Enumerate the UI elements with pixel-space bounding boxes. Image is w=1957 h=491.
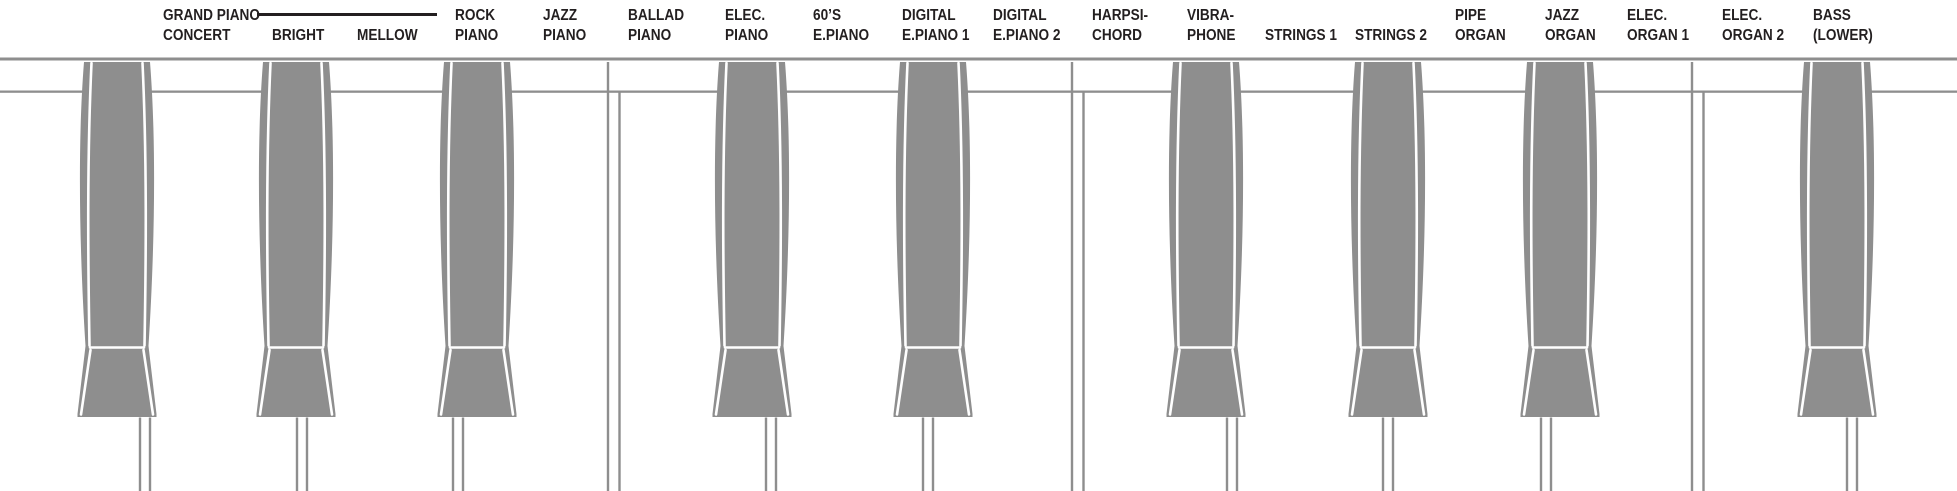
- voice-label-bass-lower: BASS(LOWER): [1813, 6, 1873, 46]
- voice-label-line: DIGITAL: [902, 6, 969, 26]
- voice-label-line: ORGAN: [1545, 26, 1596, 46]
- voice-label-line: PIPE: [1455, 6, 1506, 26]
- voice-label-digital-e-piano-1: DIGITALE.PIANO 1: [902, 6, 969, 46]
- voice-label-line: 60’S: [813, 6, 869, 26]
- voice-label-jazz-piano: JAZZPIANO: [543, 6, 586, 46]
- voice-label-vibra-phone: VIBRA-PHONE: [1187, 6, 1236, 46]
- voice-label-line: BASS: [1813, 6, 1873, 26]
- voice-label-line: JAZZ: [543, 6, 586, 26]
- voice-label-rock-piano: ROCKPIANO: [455, 6, 498, 46]
- voice-label-elec-organ-2: ELEC.ORGAN 2: [1722, 6, 1784, 46]
- voice-label-line: ORGAN 1: [1627, 26, 1689, 46]
- voice-label-harpsi-chord: HARPSI-CHORD: [1092, 6, 1148, 46]
- voice-label-60-s-e-piano: 60’SE.PIANO: [813, 6, 869, 46]
- voice-label-line: ORGAN 2: [1722, 26, 1784, 46]
- voice-label-digital-e-piano-2: DIGITALE.PIANO 2: [993, 6, 1060, 46]
- voice-label-line: JAZZ: [1545, 6, 1596, 26]
- voice-labels: GRAND PIANOCONCERTBRIGHTMELLOWROCKPIANOJ…: [0, 0, 1957, 491]
- voice-label-line: PHONE: [1187, 26, 1236, 46]
- voice-label-line: CHORD: [1092, 26, 1148, 46]
- voice-label-line: PIANO: [543, 26, 586, 46]
- voice-label-jazz-organ: JAZZORGAN: [1545, 6, 1596, 46]
- voice-label-line: PIANO: [455, 26, 498, 46]
- grand-piano-brace-line: [257, 13, 437, 16]
- voice-label-line: E.PIANO 2: [993, 26, 1060, 46]
- voice-key-diagram: GRAND PIANOCONCERTBRIGHTMELLOWROCKPIANOJ…: [0, 0, 1957, 491]
- voice-label-strings-1: STRINGS 1: [1265, 26, 1337, 46]
- voice-label-elec-organ-1: ELEC.ORGAN 1: [1627, 6, 1689, 46]
- voice-label-line: BRIGHT: [272, 26, 324, 46]
- voice-label-elec-piano: ELEC.PIANO: [725, 6, 768, 46]
- voice-label-line: CONCERT: [163, 26, 260, 46]
- voice-label-line: (LOWER): [1813, 26, 1873, 46]
- voice-label-line: HARPSI-: [1092, 6, 1148, 26]
- voice-label-line: E.PIANO 1: [902, 26, 969, 46]
- voice-label-line: ELEC.: [725, 6, 768, 26]
- voice-label-line: BALLAD: [628, 6, 684, 26]
- voice-label-ballad-piano: BALLADPIANO: [628, 6, 684, 46]
- voice-label-line: MELLOW: [357, 26, 418, 46]
- voice-label-line: ELEC.: [1722, 6, 1784, 26]
- voice-label-line: STRINGS 1: [1265, 26, 1337, 46]
- voice-label-line: E.PIANO: [813, 26, 869, 46]
- voice-label-bright: BRIGHT: [272, 26, 324, 46]
- voice-label-line: ROCK: [455, 6, 498, 26]
- voice-label-strings-2: STRINGS 2: [1355, 26, 1427, 46]
- voice-label-line: VIBRA-: [1187, 6, 1236, 26]
- voice-label-pipe-organ: PIPEORGAN: [1455, 6, 1506, 46]
- voice-label-mellow: MELLOW: [357, 26, 418, 46]
- voice-label-line: GRAND PIANO: [163, 6, 260, 26]
- voice-label-grand-piano-concert: GRAND PIANOCONCERT: [163, 6, 260, 46]
- voice-label-line: ELEC.: [1627, 6, 1689, 26]
- voice-label-line: ORGAN: [1455, 26, 1506, 46]
- voice-label-line: STRINGS 2: [1355, 26, 1427, 46]
- voice-label-line: DIGITAL: [993, 6, 1060, 26]
- voice-label-line: PIANO: [725, 26, 768, 46]
- voice-label-line: PIANO: [628, 26, 684, 46]
